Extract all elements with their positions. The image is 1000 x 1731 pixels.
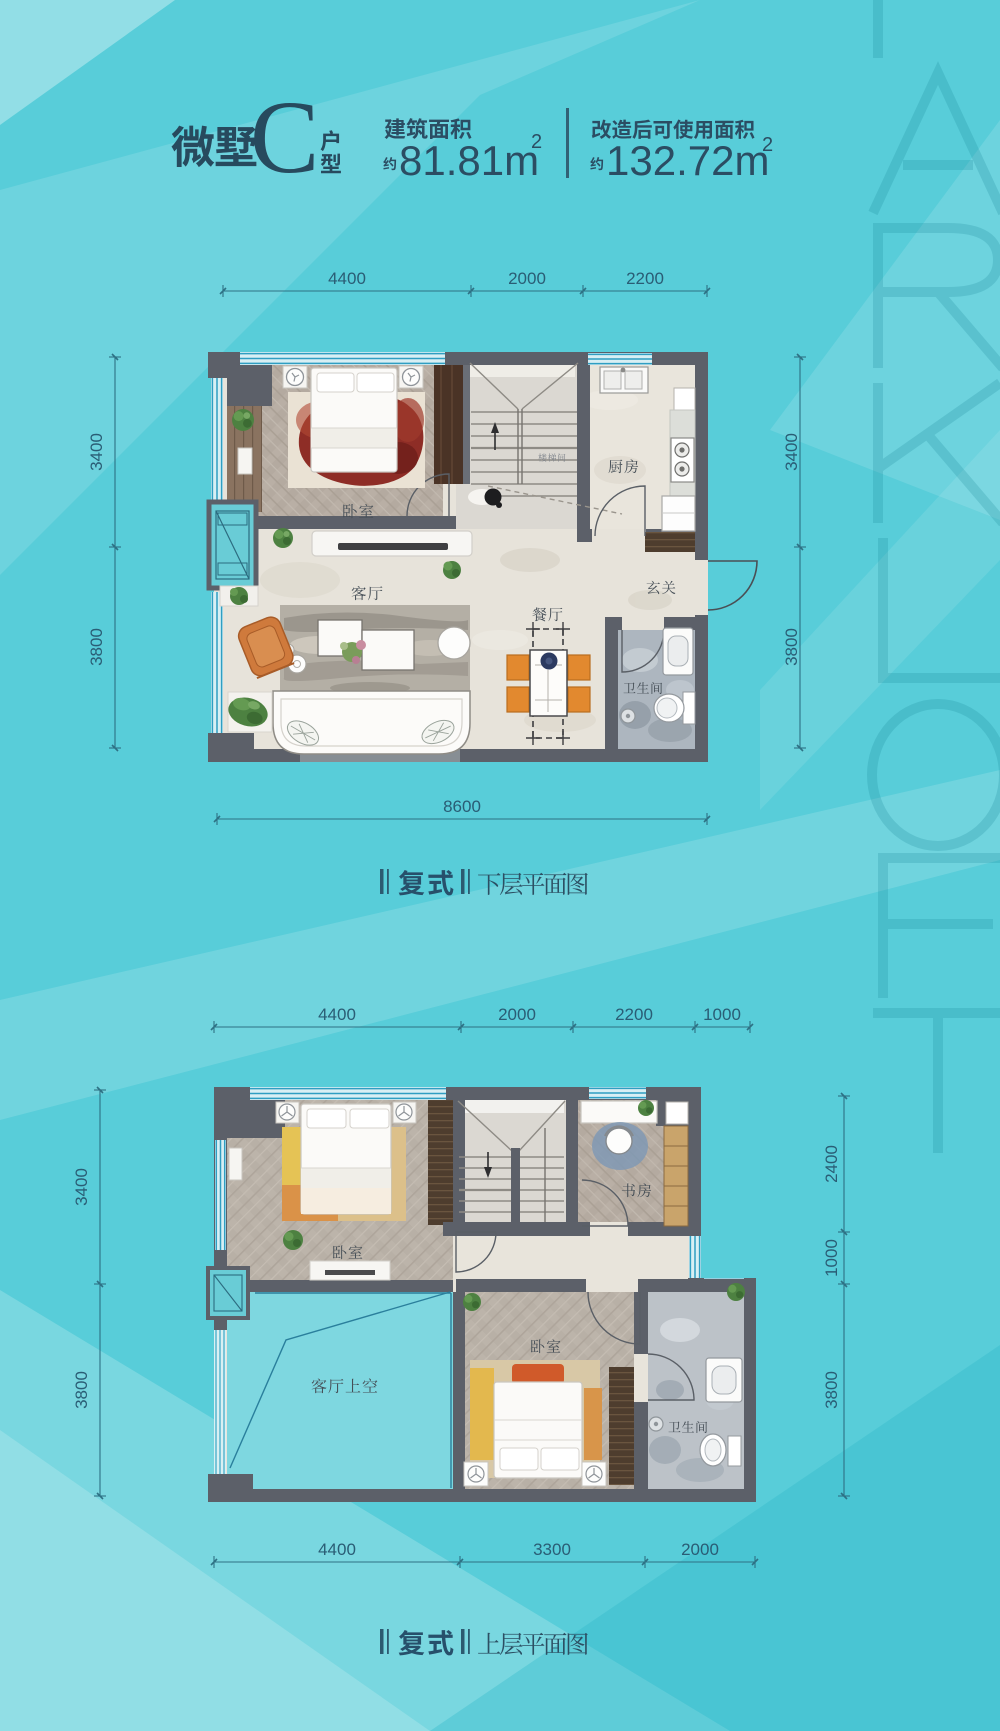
svg-text:3800: 3800 — [782, 628, 801, 666]
svg-text:2000: 2000 — [681, 1540, 719, 1559]
svg-text:2: 2 — [762, 134, 773, 156]
svg-text:132.72m: 132.72m — [606, 137, 769, 184]
svg-text:81.81m: 81.81m — [399, 137, 539, 184]
svg-text:2200: 2200 — [615, 1005, 653, 1024]
svg-text:1000: 1000 — [822, 1239, 841, 1277]
svg-text:4400: 4400 — [318, 1540, 356, 1559]
svg-text:3400: 3400 — [72, 1168, 91, 1206]
svg-text:2000: 2000 — [498, 1005, 536, 1024]
svg-text:3800: 3800 — [72, 1371, 91, 1409]
svg-text:3400: 3400 — [782, 433, 801, 471]
svg-text:4400: 4400 — [318, 1005, 356, 1024]
svg-text:2: 2 — [531, 131, 542, 153]
svg-text:3800: 3800 — [822, 1371, 841, 1409]
svg-text:C: C — [250, 80, 319, 195]
svg-text:1000: 1000 — [703, 1005, 741, 1024]
svg-text:2000: 2000 — [508, 269, 546, 288]
svg-text:3800: 3800 — [87, 628, 106, 666]
svg-text:4400: 4400 — [328, 269, 366, 288]
svg-text:3400: 3400 — [87, 433, 106, 471]
svg-text:3300: 3300 — [533, 1540, 571, 1559]
svg-text:8600: 8600 — [443, 797, 481, 816]
svg-text:2200: 2200 — [626, 269, 664, 288]
svg-text:2400: 2400 — [822, 1145, 841, 1183]
